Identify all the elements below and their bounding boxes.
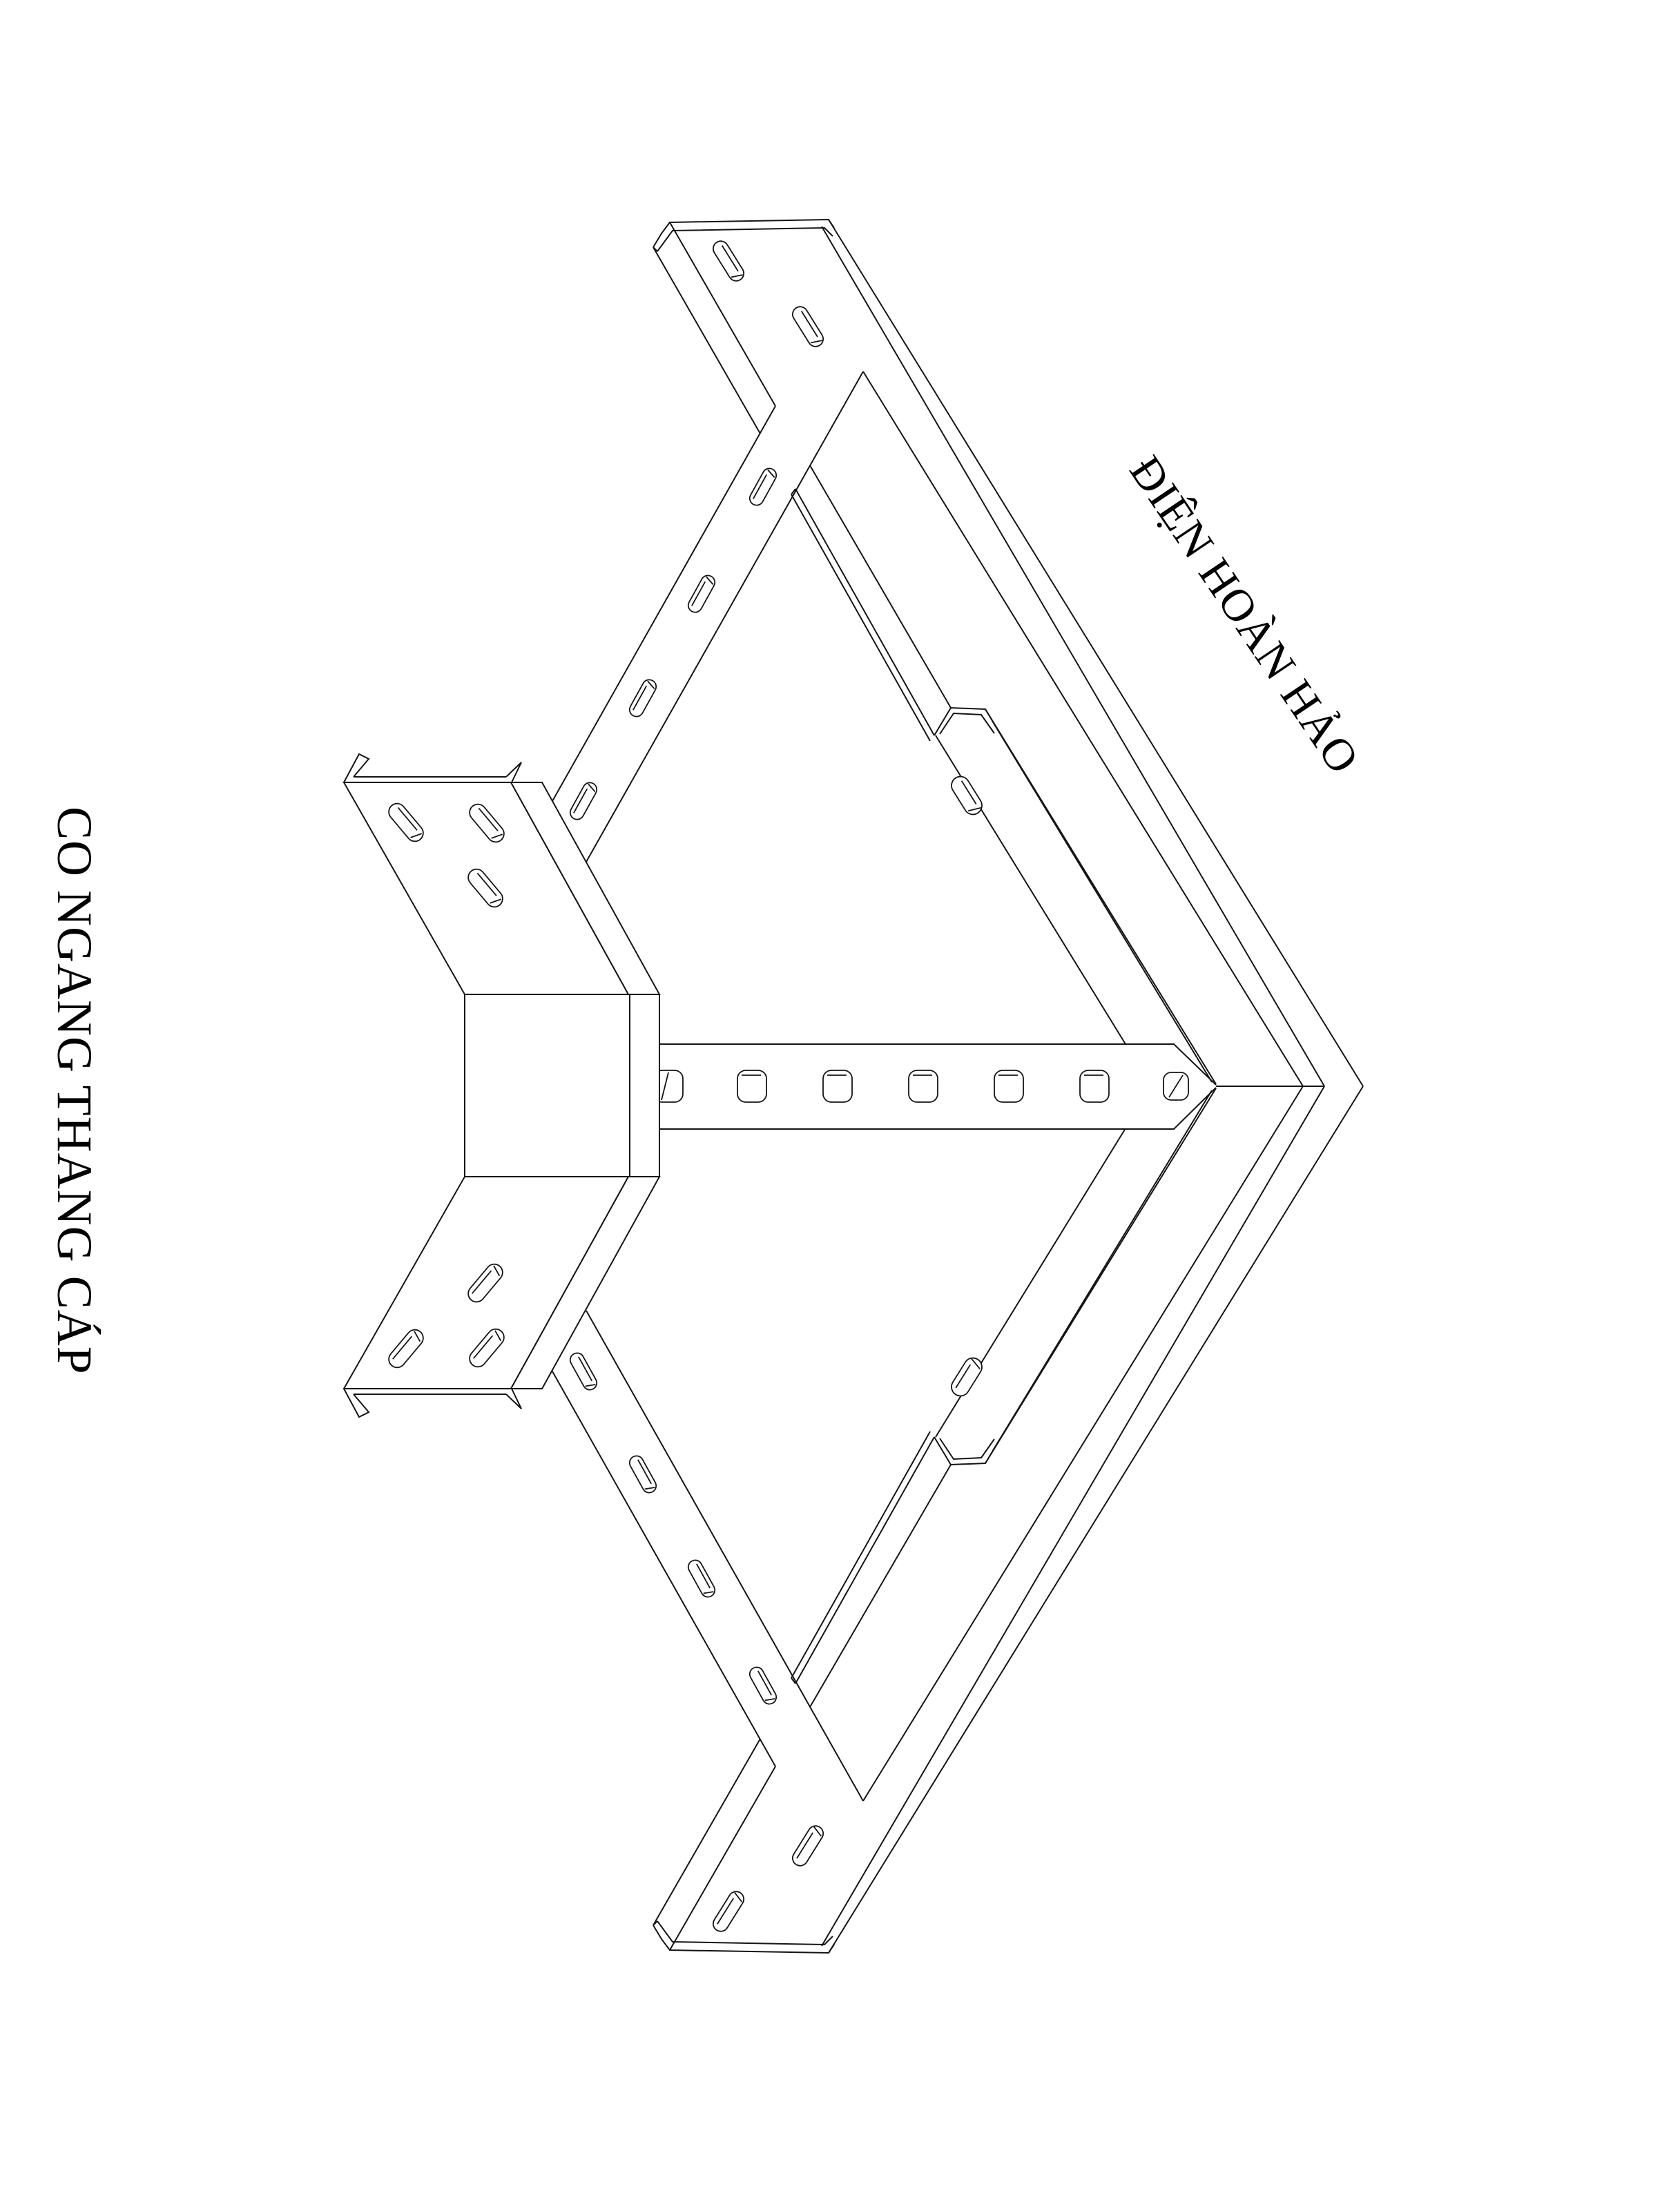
corner-rung-slot (909, 1070, 938, 1102)
rung-lower (552, 1311, 863, 1801)
inner-rail-bottom-edge-b (791, 1431, 930, 1678)
inner-rail-top-end-face-inner (940, 713, 994, 734)
rung-upper-slot (747, 466, 779, 508)
corner-rung-slot (1164, 1072, 1188, 1100)
rung-upper-slot (686, 573, 717, 615)
inner-rail-top-edge-b (791, 494, 930, 741)
rail-bottom-mid-edge (822, 1086, 1324, 1946)
rung-lower-slot (747, 1665, 779, 1706)
outer-rail-bottom (653, 1086, 1363, 1953)
rail-bottom-flange-edge (653, 1739, 760, 1925)
inner-rail-top-edge-a (795, 489, 934, 735)
rail-top-web-slot (711, 238, 747, 284)
rail-bottom-web-edge-lower (810, 1465, 951, 1707)
inner-rail-bottom-end-face-outer (934, 1437, 1000, 1465)
rail-top-inner-edge (863, 372, 1303, 1086)
corner-fitting (344, 754, 659, 1417)
rail-bottom-web-slot (790, 1823, 827, 1869)
corner-rung-slot (823, 1070, 852, 1102)
inner-rail-top (791, 489, 1216, 1084)
rail-bottom-web-slot (711, 1889, 747, 1934)
rail-bottom-outer-edge (829, 1086, 1363, 1953)
inner-rail-bottom-edge-a (795, 1437, 934, 1684)
corner-rung-slot (737, 1070, 766, 1102)
rail-bottom-end-face-outer (653, 1925, 834, 1953)
corner-web (465, 994, 659, 1177)
corner-web-flange-strip (630, 994, 659, 1177)
rail-top-web-slot (790, 304, 827, 349)
rail-top-end-face-outer (653, 220, 834, 247)
cable-ladder-elbow-isometric-drawing: CO NGANG THANG CÁP ĐIỆN HOÀN HẢO (0, 0, 1680, 2198)
drawing-sheet: CO NGANG THANG CÁP ĐIỆN HOÀN HẢO (0, 0, 1680, 2198)
rung-upper-slot (568, 780, 599, 822)
corner-rung-slot (1080, 1070, 1109, 1102)
rung-lower-slot (686, 1558, 717, 1599)
rung-lower-slot (627, 1454, 659, 1495)
rung-lower-slot (568, 1351, 599, 1392)
corner-rung-slot (994, 1070, 1023, 1102)
rung-lower-lower-edge (586, 1311, 863, 1801)
corner-plate-lower-left-tip (344, 1389, 369, 1417)
rung-upper-lower-edge (586, 372, 863, 862)
brand-watermark-label: ĐIỆN HOÀN HẢO (1120, 447, 1369, 783)
corner-plate-upper-right-tip (506, 762, 521, 782)
corner-web-face (465, 994, 630, 1177)
inner-rail-bottom-end-face-inner (940, 1438, 994, 1459)
rail-bottom-inner-edge (863, 1086, 1303, 1801)
inner-rail-top-slot (948, 773, 985, 818)
inner-rail-bottom-slot (948, 1355, 985, 1400)
rung-upper-edge (552, 406, 775, 801)
rail-top-flange-edge (653, 247, 760, 434)
rail-top-web-edge-lower (810, 465, 951, 708)
product-name-label: CO NGANG THANG CÁP (47, 807, 102, 1375)
inner-rail-bottom (791, 1088, 1216, 1684)
corner-plate-upper-left-tip (344, 754, 369, 782)
corner-plate-upper (344, 754, 659, 994)
corner-plate-lower (344, 1177, 659, 1417)
rung-upper-slot (627, 677, 659, 719)
corner-plate-lower-right-tip (506, 1389, 521, 1409)
inner-rail-bottom-right-edge-b (992, 1090, 1212, 1452)
inner-rail-top-right-edge-b (992, 721, 1212, 1082)
inner-rail-top-end-face-outer (934, 708, 1000, 735)
corner-rung (654, 1044, 1324, 1129)
rung-upper (552, 372, 863, 862)
rung-lower-edge (552, 1371, 775, 1766)
